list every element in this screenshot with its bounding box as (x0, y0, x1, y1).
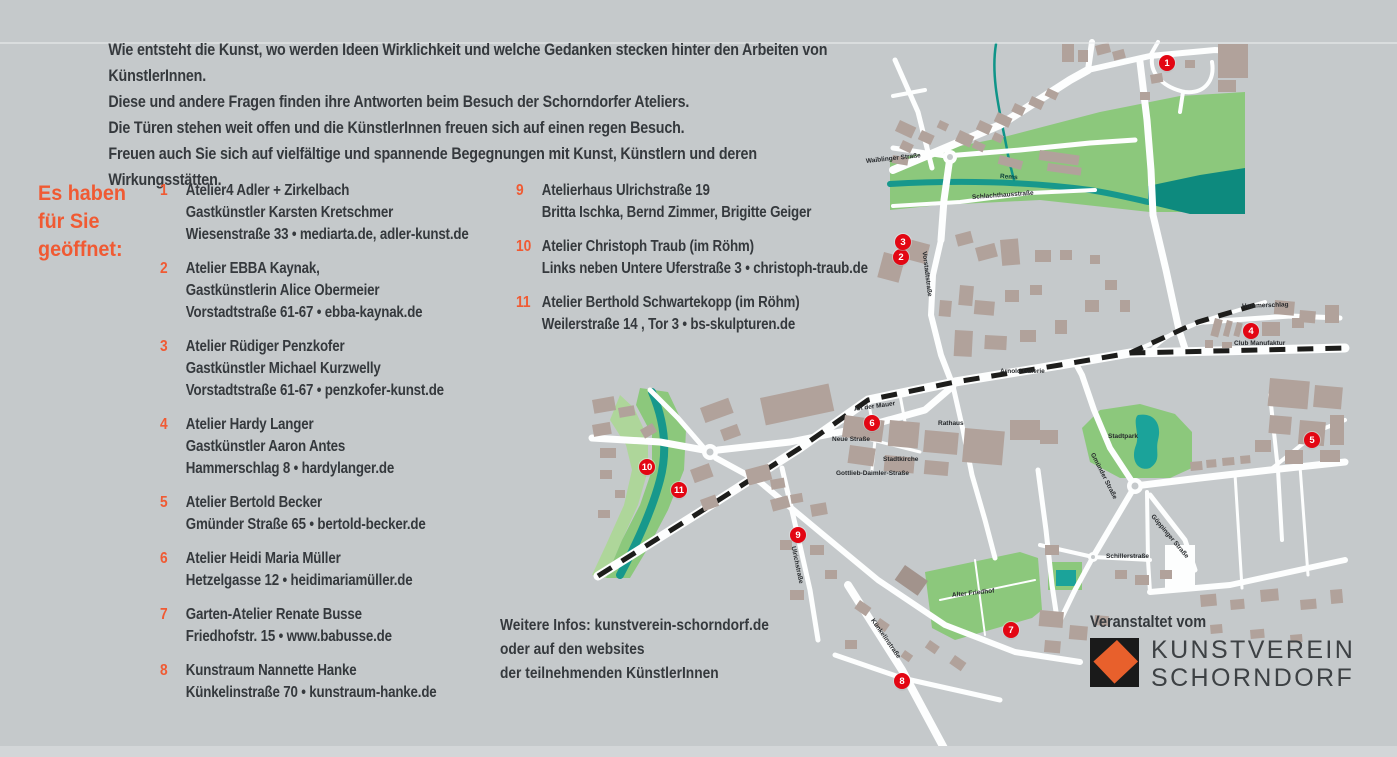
atelier-details: Garten-Atelier Renate Busse Friedhofstr.… (186, 604, 392, 648)
atelier-number: 5 (160, 492, 186, 536)
atelier-number: 4 (160, 414, 186, 480)
logo-text: KUNSTVEREIN SCHORNDORF (1151, 636, 1355, 692)
atelier-details: Atelier Berthold Schwartekopp (im Röhm) … (542, 292, 800, 336)
street-label: Stadtkirche (883, 456, 918, 463)
atelier-details: Atelier Christoph Traub (im Röhm) Links … (542, 236, 868, 280)
atelier-item-7: 7Garten-Atelier Renate Busse Friedhofstr… (160, 604, 504, 648)
place-label: Club Manufaktur (1234, 340, 1285, 347)
atelier-item-5: 5Atelier Bertold Becker Gmünder Straße 6… (160, 492, 504, 536)
atelier-item-8: 8Kunstraum Nannette Hanke Künkelinstraße… (160, 660, 504, 704)
atelier-details: Atelier Bertold Becker Gmünder Straße 65… (186, 492, 426, 536)
page-edge (0, 746, 1397, 757)
atelier-item-4: 4Atelier Hardy Langer Gastkünstler Aaron… (160, 414, 504, 480)
street-label: Rems (1000, 173, 1018, 181)
map-marker-5: 5 (1304, 432, 1320, 448)
atelier-number: 9 (516, 180, 542, 224)
kunstverein-logo: KUNSTVEREIN SCHORNDORF (1090, 638, 1355, 692)
atelier-number: 2 (160, 258, 186, 324)
atelier-list-column-2: 9Atelierhaus Ulrichstraße 19 Britta Isch… (516, 180, 956, 348)
map-marker-9: 9 (790, 527, 806, 543)
atelier-number: 7 (160, 604, 186, 648)
atelier-details: Atelier Hardy Langer Gastkünstler Aaron … (186, 414, 394, 480)
friedhof-pond (1056, 570, 1076, 586)
atelier-number: 8 (160, 660, 186, 704)
map-marker-4: 4 (1243, 323, 1259, 339)
atelier-number: 11 (516, 292, 542, 336)
atelier-details: Atelier Heidi Maria Müller Hetzelgasse 1… (186, 548, 413, 592)
street-label: Gottlieb-Daimler-Straße (836, 470, 909, 477)
map-marker-1: 1 (1159, 55, 1175, 71)
street-label: Arnold Galerie (1000, 368, 1045, 375)
map-marker-11: 11 (671, 482, 687, 498)
map-marker-8: 8 (894, 673, 910, 689)
logo-line-1: KUNSTVEREIN (1151, 636, 1355, 664)
atelier-item-3: 3Atelier Rüdiger Penzkofer Gastkünstler … (160, 336, 504, 402)
atelier-item-6: 6Atelier Heidi Maria Müller Hetzelgasse … (160, 548, 504, 592)
atelier-number: 1 (160, 180, 186, 246)
map-marker-6: 6 (864, 415, 880, 431)
atelier-details: Atelier4 Adler + Zirkelbach Gastkünstler… (186, 180, 469, 246)
atelier-item-2: 2Atelier EBBA Kaynak, Gastkünstlerin Ali… (160, 258, 504, 324)
atelier-item-9: 9Atelierhaus Ulrichstraße 19 Britta Isch… (516, 180, 894, 224)
atelier-number: 3 (160, 336, 186, 402)
flyer-page: Waiblinger Straße Rems Schlachthausstraß… (0, 0, 1397, 757)
street-label: Rathaus (938, 420, 964, 427)
atelier-details: Atelierhaus Ulrichstraße 19 Britta Ischk… (542, 180, 811, 224)
atelier-item-1: 1Atelier4 Adler + Zirkelbach Gastkünstle… (160, 180, 504, 246)
logo-diamond-icon (1090, 638, 1139, 687)
atelier-details: Atelier Rüdiger Penzkofer Gastkünstler M… (186, 336, 444, 402)
atelier-details: Kunstraum Nannette Hanke Künkelinstraße … (186, 660, 437, 704)
atelier-number: 6 (160, 548, 186, 592)
organizer-label: Veranstaltet vom (1090, 613, 1206, 632)
atelier-details: Atelier EBBA Kaynak, Gastkünstlerin Alic… (186, 258, 423, 324)
atelier-number: 10 (516, 236, 542, 280)
open-hours-heading: Es haben für Sie geöffnet: (38, 179, 126, 263)
map-marker-7: 7 (1003, 622, 1019, 638)
logo-line-2: SCHORNDORF (1151, 664, 1355, 692)
street-label: Schillerstraße (1106, 553, 1149, 560)
more-info-text: Weitere Infos: kunstverein-schorndorf.de… (500, 614, 769, 686)
atelier-item-11: 11Atelier Berthold Schwartekopp (im Röhm… (516, 292, 894, 336)
place-label: Stadtpark (1108, 433, 1138, 440)
map-marker-10: 10 (639, 459, 655, 475)
street-label: Neue Straße (832, 436, 870, 443)
stadtpark-pond (1134, 415, 1159, 469)
atelier-item-10: 10Atelier Christoph Traub (im Röhm) Link… (516, 236, 894, 280)
intro-text: Wie entsteht die Kunst, wo werden Ideen … (108, 37, 847, 193)
